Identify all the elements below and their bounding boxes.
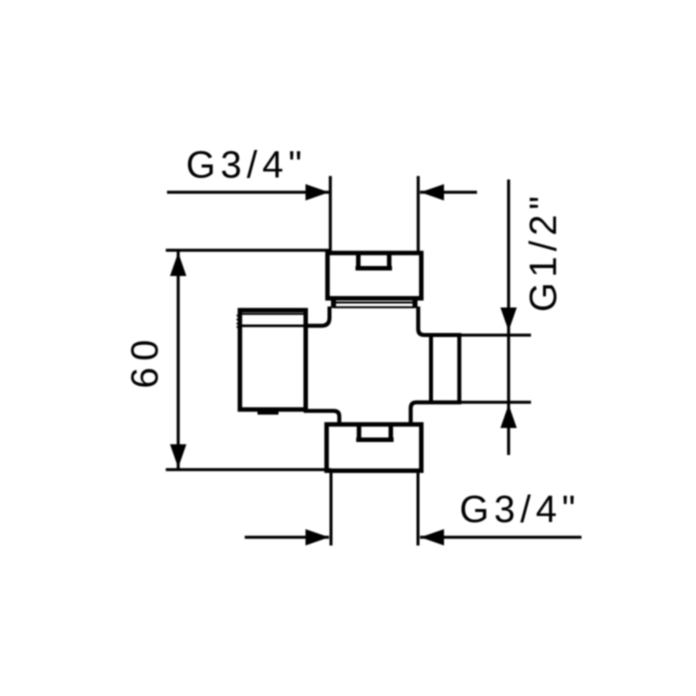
svg-text:G3/4": G3/4" xyxy=(460,489,581,531)
svg-text:G3/4": G3/4" xyxy=(186,145,307,187)
svg-text:60: 60 xyxy=(125,333,167,388)
svg-text:G1/2": G1/2" xyxy=(523,191,565,312)
